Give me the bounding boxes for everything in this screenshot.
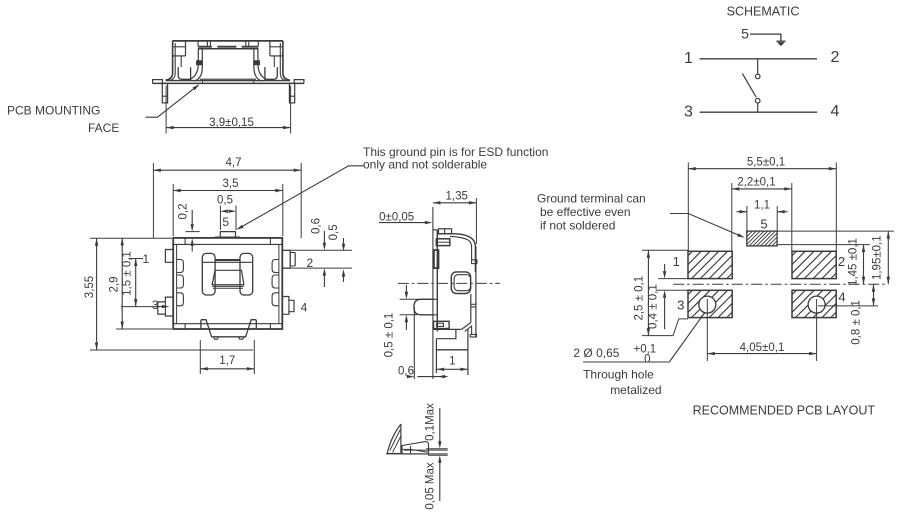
svg-text:0: 0 <box>644 354 650 366</box>
svg-text:4,7: 4,7 <box>226 157 242 169</box>
svg-text:FACE: FACE <box>88 121 119 135</box>
svg-text:1,7: 1,7 <box>219 355 235 367</box>
svg-text:be effective even: be effective even <box>540 205 631 219</box>
svg-text:0,5: 0,5 <box>217 194 233 206</box>
svg-text:3: 3 <box>677 298 684 313</box>
svg-text:2: 2 <box>306 256 313 270</box>
svg-text:1: 1 <box>673 254 680 269</box>
svg-text:1,5 ± 0,1: 1,5 ± 0,1 <box>121 251 133 296</box>
svg-text:1: 1 <box>449 356 455 368</box>
svg-text:5,5±0,1: 5,5±0,1 <box>747 156 785 168</box>
svg-text:3: 3 <box>152 298 159 312</box>
svg-text:if not soldered: if not soldered <box>540 219 615 233</box>
svg-text:5: 5 <box>222 215 229 229</box>
svg-text:2,5 ± 0,1: 2,5 ± 0,1 <box>634 276 646 321</box>
svg-text:3,55: 3,55 <box>84 276 96 298</box>
svg-text:2: 2 <box>831 49 840 66</box>
svg-text:1: 1 <box>684 50 693 67</box>
svg-text:1,35: 1,35 <box>446 190 468 202</box>
svg-text:3: 3 <box>684 104 693 121</box>
svg-text:1,45 ±0,1: 1,45 ±0,1 <box>848 238 860 286</box>
svg-text:5: 5 <box>760 216 767 231</box>
svg-text:2,9: 2,9 <box>109 277 121 293</box>
svg-text:0,5 ± 0,1: 0,5 ± 0,1 <box>384 313 396 358</box>
svg-text:SCHEMATIC: SCHEMATIC <box>727 5 800 19</box>
svg-text:metalized: metalized <box>610 383 661 397</box>
svg-text:4: 4 <box>838 290 845 305</box>
svg-text:0,6: 0,6 <box>310 218 322 234</box>
svg-text:4,05±0,1: 4,05±0,1 <box>740 342 785 354</box>
svg-text:2,2±0,1: 2,2±0,1 <box>737 177 775 189</box>
svg-text:1,1: 1,1 <box>754 199 770 211</box>
svg-text:1: 1 <box>142 252 149 266</box>
svg-text:Through hole: Through hole <box>583 367 654 381</box>
svg-text:4: 4 <box>831 103 840 120</box>
svg-text:1,95±0,1: 1,95±0,1 <box>871 235 883 280</box>
svg-text:0,5: 0,5 <box>328 224 340 240</box>
svg-text:0,6: 0,6 <box>398 366 414 378</box>
svg-text:0,8 ± 0,1: 0,8 ± 0,1 <box>851 300 863 345</box>
svg-text:3,5: 3,5 <box>223 178 239 190</box>
svg-text:0,2: 0,2 <box>177 204 189 220</box>
svg-text:only and not solderable: only and not solderable <box>363 157 487 171</box>
svg-text:0,05 Max: 0,05 Max <box>425 462 437 510</box>
svg-text:4: 4 <box>301 301 308 315</box>
svg-text:RECOMMENDED PCB LAYOUT: RECOMMENDED PCB LAYOUT <box>693 403 876 417</box>
svg-text:2 Ø 0,65: 2 Ø 0,65 <box>573 346 619 360</box>
svg-text:0,4 ± 0,1: 0,4 ± 0,1 <box>648 284 660 329</box>
svg-text:0±0,05: 0±0,05 <box>379 211 414 223</box>
svg-text:3,9±0,15: 3,9±0,15 <box>209 117 254 129</box>
svg-text:Ground terminal can: Ground terminal can <box>537 191 646 205</box>
svg-text:0,1Max: 0,1Max <box>425 403 437 441</box>
svg-text:PCB MOUNTING: PCB MOUNTING <box>7 104 100 118</box>
svg-text:2: 2 <box>838 254 845 269</box>
svg-text:5: 5 <box>741 26 749 42</box>
